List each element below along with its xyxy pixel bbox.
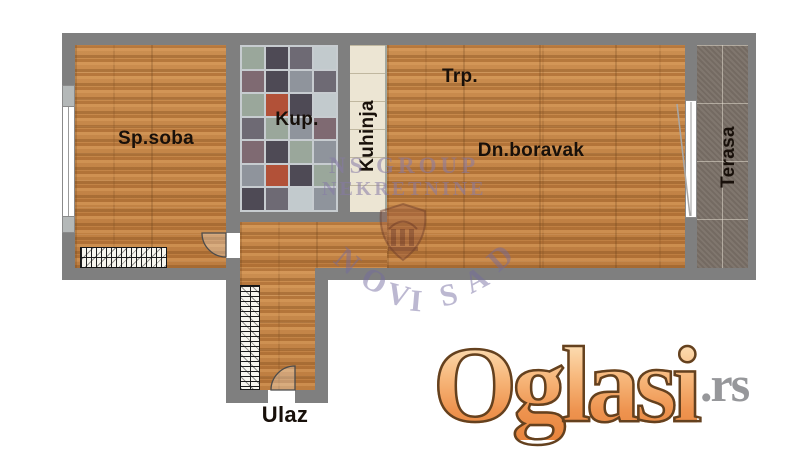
bathroom-tile xyxy=(290,188,312,210)
watermark-shield-icon xyxy=(375,202,431,262)
bathroom-tile xyxy=(266,165,288,187)
floorplan-image: Sp.soba Kup. Kuhinja Trp. Dn.boravak Ter… xyxy=(0,0,803,453)
bathroom-tile xyxy=(242,141,264,163)
wall-terrace-upper xyxy=(685,45,697,100)
bathroom-tile xyxy=(242,47,264,69)
bathroom-tile xyxy=(266,141,288,163)
wall-terrace-lower xyxy=(685,218,697,268)
oglasi-logo-tld: .rs xyxy=(700,355,748,413)
label-bedroom: Sp.soba xyxy=(118,128,194,150)
bedroom-wardrobe xyxy=(80,247,167,268)
bathroom-tile xyxy=(290,47,312,69)
bathroom-tile xyxy=(242,71,264,93)
label-entrance: Ulaz xyxy=(262,402,308,428)
bedroom-window xyxy=(62,85,75,233)
terrace-door-window xyxy=(685,100,697,218)
bedroom-window-sill-bottom xyxy=(62,216,75,233)
bathroom-tile xyxy=(242,94,264,116)
label-bathroom: Kup. xyxy=(275,109,318,131)
hallway-wardrobe xyxy=(240,285,260,390)
bathroom-tile xyxy=(290,165,312,187)
corridor-floor xyxy=(240,222,387,268)
wall-bath-kitchen-bottom xyxy=(226,212,387,222)
oglasi-logo: Oglasi .rs xyxy=(433,332,745,440)
bathroom-tile xyxy=(242,188,264,210)
wall-hallway-right xyxy=(315,268,328,403)
bathroom-tile xyxy=(242,165,264,187)
bathroom-tile xyxy=(290,141,312,163)
watermark-agency-line2: NEKRETNINE xyxy=(322,178,486,201)
bedroom-window-sill-top xyxy=(62,85,75,107)
watermark-agency-line1: NS GROUP xyxy=(329,153,479,179)
bathroom-tile xyxy=(290,71,312,93)
bedroom-floor xyxy=(75,45,226,268)
bathroom-tile xyxy=(242,118,264,140)
bathroom-tile xyxy=(314,47,336,69)
bathroom-tile xyxy=(314,71,336,93)
wall-right xyxy=(748,33,756,280)
bathroom-tile xyxy=(266,71,288,93)
wall-bottom-left xyxy=(62,268,226,280)
watermark-city-letter: S xyxy=(436,275,461,314)
bathroom-tile xyxy=(266,188,288,210)
wall-top xyxy=(62,33,756,45)
label-terrace: Terasa xyxy=(718,126,740,188)
bathroom-tile xyxy=(266,47,288,69)
wall-bedroom-right-upper xyxy=(226,45,240,233)
watermark-city-letter: I xyxy=(408,283,423,320)
wall-bedroom-right-lower xyxy=(226,258,240,403)
label-living: Dn.boravak xyxy=(478,140,584,162)
bedroom-door-opening xyxy=(226,233,240,258)
label-dining: Trp. xyxy=(442,66,478,88)
oglasi-logo-name: Oglasi xyxy=(433,332,697,440)
